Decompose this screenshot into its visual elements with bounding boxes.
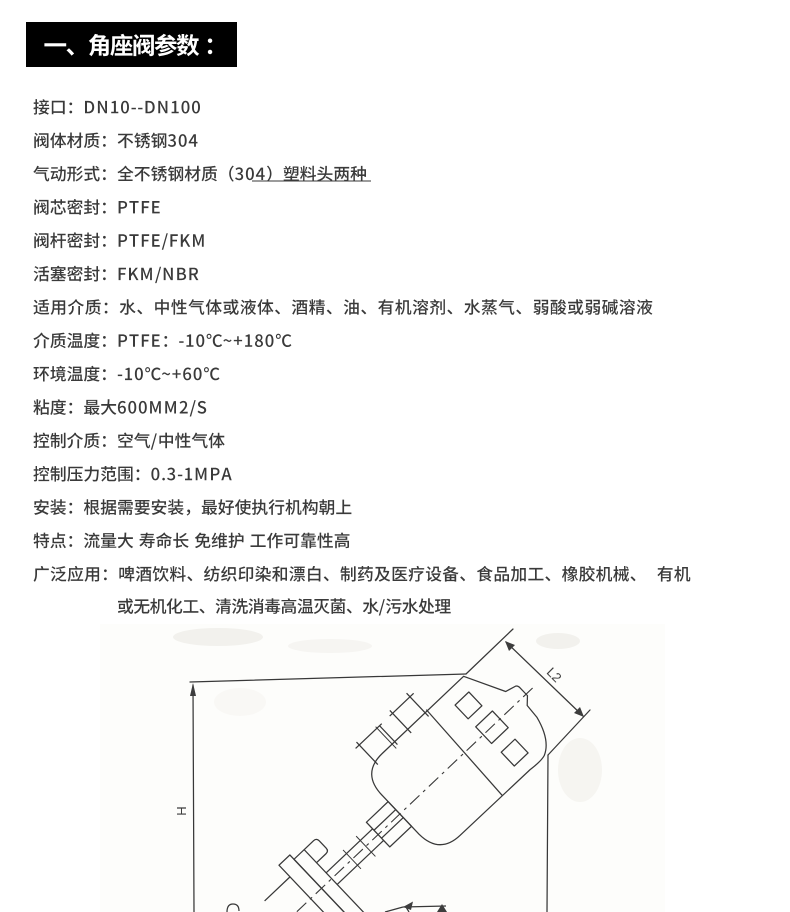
svg-text:H: H: [174, 806, 189, 815]
